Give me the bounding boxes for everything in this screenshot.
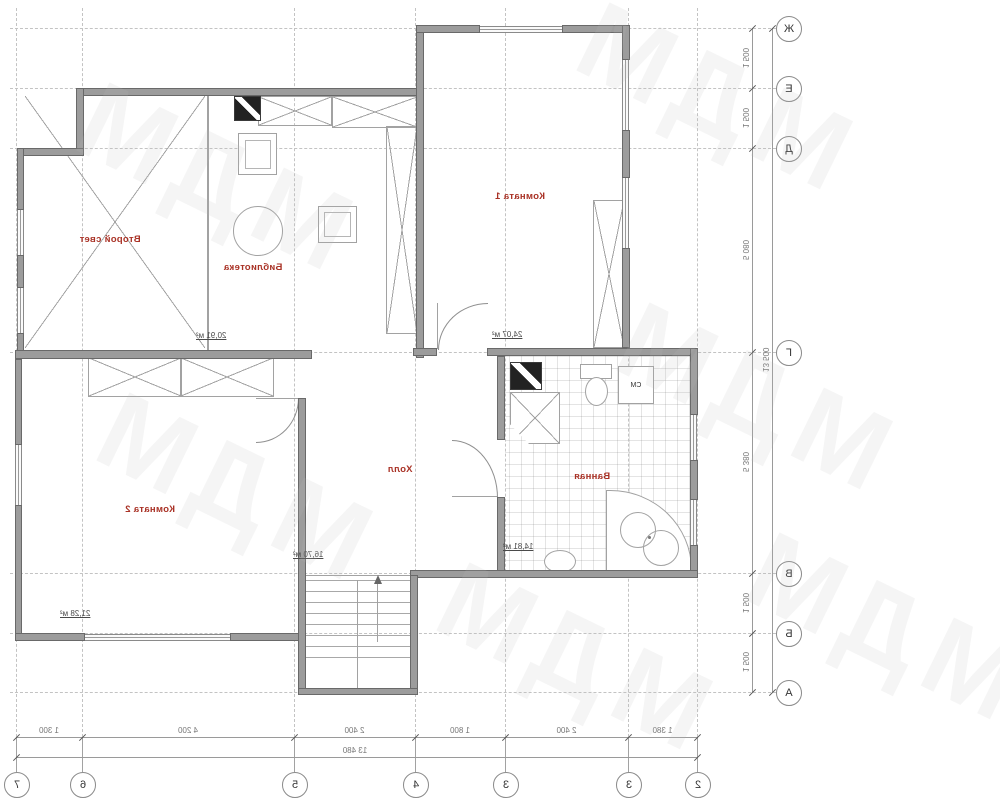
axis-number: 6 xyxy=(80,779,86,791)
axis-connector xyxy=(294,737,295,772)
window xyxy=(17,210,24,255)
axis-letter: А xyxy=(785,687,792,699)
washing-machine: СМ xyxy=(618,366,654,404)
wall-segment xyxy=(413,348,437,356)
axis-letter: Б xyxy=(785,628,792,640)
wall-segment xyxy=(690,348,698,415)
table-inner-line xyxy=(324,212,351,237)
axis-number: 4 xyxy=(413,779,419,791)
window xyxy=(480,26,562,33)
dimension-line xyxy=(16,757,697,758)
axis-connector xyxy=(505,737,506,772)
dimension-value: 1 300 xyxy=(16,726,82,735)
partition-line xyxy=(207,96,209,350)
dimension-value: 1 500 xyxy=(740,578,751,628)
wardrobe xyxy=(180,357,274,397)
axis-bubble-letter: А xyxy=(776,680,802,706)
door-leaf xyxy=(452,496,497,497)
bookshelf xyxy=(258,96,332,126)
axis-bubble-letter: Г xyxy=(776,340,802,366)
stairs-top-line xyxy=(306,575,410,576)
axis-connector xyxy=(415,737,416,772)
door-arc xyxy=(256,398,299,443)
door-leaf xyxy=(256,398,298,399)
stairs-treads xyxy=(306,580,410,660)
stairs-divider xyxy=(357,580,358,688)
wall-segment xyxy=(487,348,698,356)
vent-shaft-icon xyxy=(510,362,542,390)
dimension-value: 2 400 xyxy=(294,726,415,735)
wall-segment xyxy=(15,350,312,359)
axis-bubble-number: 7 xyxy=(4,772,30,798)
wall-segment xyxy=(17,148,24,210)
axis-letter: В xyxy=(785,568,792,580)
dimension-value: 1 380 xyxy=(628,726,697,735)
wall-segment xyxy=(15,633,85,641)
axis-number: 3 xyxy=(503,779,509,791)
wardrobe xyxy=(593,200,625,348)
wardrobe xyxy=(88,357,182,397)
axis-bubble-letter: В xyxy=(776,561,802,587)
window xyxy=(17,288,24,333)
stairs-arrow-stem xyxy=(377,584,378,642)
watermark: МДМ xyxy=(67,361,390,606)
wall-segment xyxy=(690,460,698,500)
dimension-line xyxy=(752,28,753,692)
wall-segment xyxy=(17,148,84,156)
window xyxy=(15,445,22,505)
wall-segment xyxy=(298,688,418,695)
wall-segment xyxy=(622,130,630,178)
dimension-value: 1 500 xyxy=(740,93,751,143)
room-label-hall: Холл xyxy=(374,464,426,475)
axis-bubble-number: 6 xyxy=(70,772,96,798)
axis-letter: Ж xyxy=(784,23,794,35)
dimension-value: 4 200 xyxy=(82,726,294,735)
axis-letter: Е xyxy=(785,83,792,95)
table xyxy=(318,206,357,243)
dimension-overall-value: 13 500 xyxy=(760,330,771,390)
watermark: МДМ xyxy=(717,501,1000,746)
dimension-line xyxy=(16,737,697,738)
wall-segment xyxy=(230,633,305,641)
room-label-library: Библиотека xyxy=(203,262,303,273)
wall-segment xyxy=(497,356,505,440)
axis-number: 2 xyxy=(695,779,701,791)
room-area-hall: 16,70 м² xyxy=(293,550,323,559)
axis-bubble-number: 2 xyxy=(685,772,711,798)
void-cross xyxy=(25,96,205,348)
window xyxy=(85,634,230,641)
window xyxy=(690,500,697,545)
window xyxy=(690,415,697,460)
axis-bubble-letter: Д xyxy=(776,136,802,162)
wall-segment xyxy=(410,570,698,578)
axis-number: 3 xyxy=(626,779,632,791)
axis-gridline xyxy=(505,8,506,737)
room-area-room1: 24,07 м² xyxy=(492,330,522,339)
wall-segment xyxy=(410,575,418,695)
axis-number: 5 xyxy=(292,779,298,791)
room-label-second-light: Второй свет xyxy=(58,234,162,245)
room-area-library: 20,91 м² xyxy=(196,331,226,340)
dimension-value: 1 500 xyxy=(740,33,751,83)
washing-machine-label: СМ xyxy=(631,382,642,389)
wall-segment xyxy=(17,255,24,288)
dimension-value: 5 380 xyxy=(740,412,751,512)
axis-bubble-number: 4 xyxy=(403,772,429,798)
axis-bubble-letter: Ж xyxy=(776,16,802,42)
wall-segment xyxy=(416,25,480,33)
wall-segment xyxy=(15,505,22,641)
window xyxy=(622,60,629,130)
bookshelf xyxy=(386,126,418,334)
dimension-value: 1 500 xyxy=(740,637,751,687)
room-label-room2: Комната 2 xyxy=(98,504,202,515)
dimension-value: 1 800 xyxy=(415,726,505,735)
axis-connector xyxy=(628,737,629,772)
wall-segment xyxy=(497,497,505,578)
wall-segment xyxy=(416,25,424,358)
room-label-bathroom: Ванная xyxy=(558,471,626,482)
wall-segment xyxy=(15,359,22,445)
dimension-overall-value: 13 480 xyxy=(325,746,385,755)
axis-number: 7 xyxy=(14,779,20,791)
axis-connector xyxy=(82,737,83,772)
desk xyxy=(238,133,277,175)
axis-letter: Д xyxy=(785,143,792,155)
door-arc xyxy=(438,303,488,350)
dimension-line xyxy=(772,28,773,692)
floor-plan-canvas: МДМ МДМ МДМ МДМ МДМ МДМ xyxy=(0,0,1000,803)
wall-segment xyxy=(76,88,420,96)
axis-bubble-letter: Б xyxy=(776,621,802,647)
bathtub-drain-dot xyxy=(648,536,651,539)
window xyxy=(622,178,629,248)
stairs-up-arrow-icon xyxy=(374,575,382,584)
room-area-room2: 21,28 м² xyxy=(60,609,90,618)
room-label-room1: Комната 1 xyxy=(468,191,572,202)
vent-shaft-icon xyxy=(234,96,261,121)
axis-bubble-number: 5 xyxy=(282,772,308,798)
dimension-value: 2 400 xyxy=(505,726,628,735)
axis-gridline xyxy=(10,28,776,29)
room-area-bathroom: 14,81 м² xyxy=(503,542,533,551)
axis-bubble-number: 3 xyxy=(616,772,642,798)
axis-letter: Г xyxy=(786,347,792,359)
bookshelf xyxy=(332,96,418,128)
axis-bubble-letter: Е xyxy=(776,76,802,102)
wall-segment xyxy=(298,398,306,695)
wall-segment xyxy=(622,25,630,60)
chair-round xyxy=(233,206,283,256)
wall-segment xyxy=(622,248,630,348)
axis-bubble-number: 3 xyxy=(493,772,519,798)
dimension-value: 5 080 xyxy=(740,200,751,300)
toilet-bowl xyxy=(585,377,608,406)
wall-segment xyxy=(76,88,84,155)
desk-inner-line xyxy=(245,140,271,169)
door-arc xyxy=(452,440,498,498)
wall-segment xyxy=(562,25,630,33)
